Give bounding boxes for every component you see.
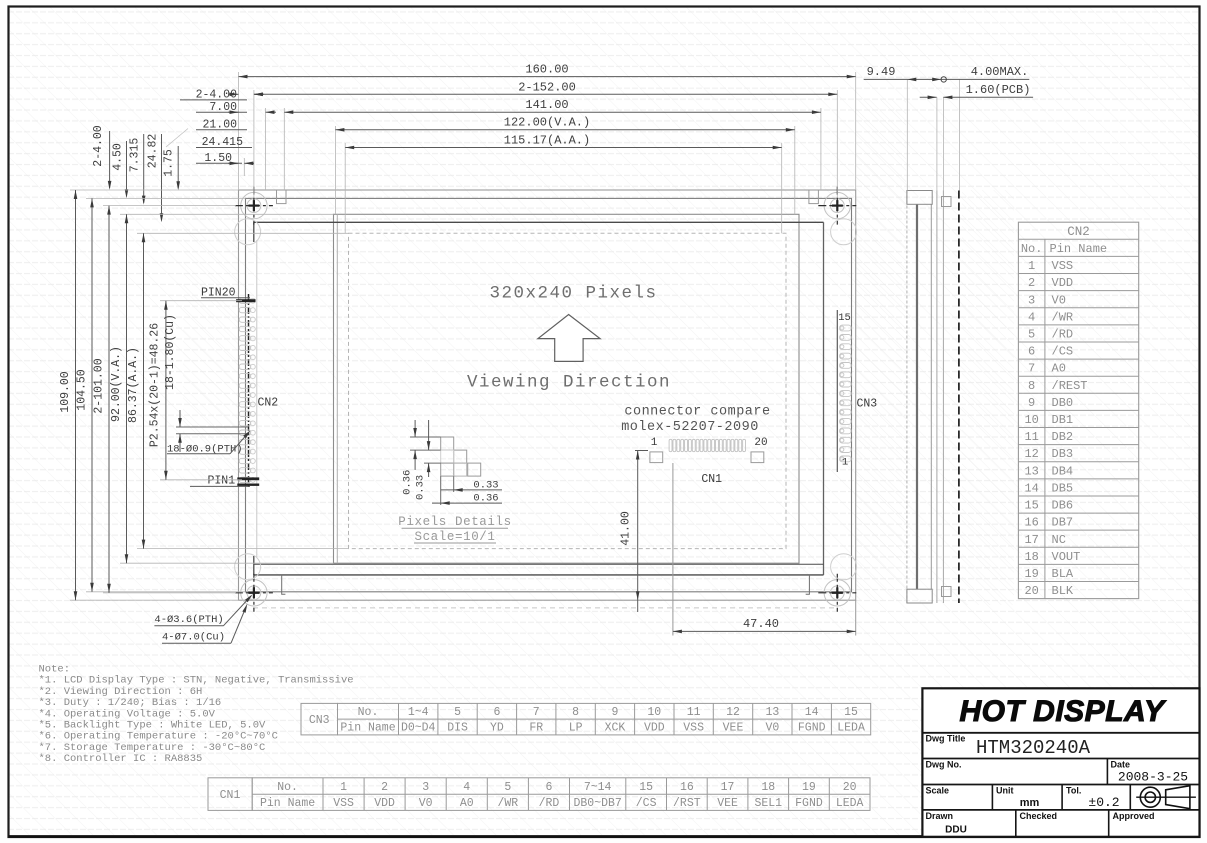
svg-text:4: 4: [1028, 310, 1035, 324]
svg-text:No.: No.: [1021, 242, 1043, 256]
svg-text:20: 20: [754, 437, 767, 449]
svg-text:FGND: FGND: [795, 797, 823, 810]
svg-text:DB2: DB2: [1052, 430, 1074, 444]
svg-text:DB7: DB7: [1052, 516, 1074, 530]
svg-text:P2.54x(20-1)=48.26: P2.54x(20-1)=48.26: [149, 323, 162, 447]
svg-text:2008-3-25: 2008-3-25: [1118, 770, 1188, 785]
svg-text:11: 11: [687, 706, 701, 719]
svg-text:PIN1: PIN1: [208, 475, 236, 488]
svg-text:1.75: 1.75: [163, 149, 176, 177]
svg-text:1: 1: [340, 781, 347, 794]
svg-text:7: 7: [1028, 362, 1035, 376]
svg-text:CN2: CN2: [258, 397, 279, 410]
svg-text:15: 15: [844, 706, 858, 719]
svg-text:6: 6: [1028, 345, 1035, 359]
svg-text:9.49: 9.49: [867, 65, 896, 79]
svg-text:/WR: /WR: [497, 797, 518, 810]
svg-text:160.00: 160.00: [525, 63, 568, 77]
svg-text:HOT DISPLAY: HOT DISPLAY: [960, 695, 1167, 728]
svg-text:10: 10: [1024, 413, 1038, 427]
svg-text:CN3: CN3: [857, 398, 878, 411]
svg-text:7.315: 7.315: [129, 138, 142, 173]
svg-text:VSS: VSS: [683, 722, 704, 735]
svg-text:HTM320240A: HTM320240A: [976, 737, 1091, 759]
svg-text:86.37(A.A.): 86.37(A.A.): [127, 347, 140, 423]
svg-text:A0: A0: [1052, 362, 1066, 376]
svg-text:16: 16: [680, 781, 694, 794]
svg-text:13: 13: [1024, 464, 1038, 478]
svg-text:DB3: DB3: [1052, 447, 1074, 461]
svg-text:1~4: 1~4: [408, 706, 429, 719]
svg-text:/CS: /CS: [1052, 345, 1074, 359]
svg-text:VOUT: VOUT: [1052, 550, 1081, 564]
svg-text:DDU: DDU: [945, 825, 967, 836]
svg-text:4-Ø3.6(PTH): 4-Ø3.6(PTH): [154, 614, 223, 626]
svg-text:92.00(V.A.): 92.00(V.A.): [110, 346, 123, 422]
svg-text:141.00: 141.00: [525, 98, 568, 112]
svg-text:V0: V0: [765, 722, 779, 735]
svg-text:24.82: 24.82: [147, 134, 160, 169]
svg-text:10: 10: [647, 706, 661, 719]
svg-text:0.33: 0.33: [473, 479, 498, 491]
svg-text:2-152.00: 2-152.00: [518, 80, 576, 94]
svg-text:8: 8: [572, 706, 579, 719]
svg-text:14: 14: [805, 706, 819, 719]
svg-text:/RST: /RST: [673, 797, 701, 810]
svg-text:104.50: 104.50: [76, 369, 89, 411]
svg-text:mm: mm: [1020, 797, 1040, 809]
svg-text:1: 1: [651, 437, 658, 449]
svg-text:DB0~DB7: DB0~DB7: [573, 797, 621, 810]
svg-text:7: 7: [533, 706, 540, 719]
svg-text:VDD: VDD: [644, 722, 665, 735]
svg-text:molex-52207-2090: molex-52207-2090: [621, 420, 759, 435]
svg-text:5: 5: [504, 781, 511, 794]
svg-text:41.00: 41.00: [620, 511, 633, 546]
svg-text:*2. Viewing Direction : 6H: *2. Viewing Direction : 6H: [39, 686, 203, 698]
svg-text:20: 20: [1024, 584, 1038, 598]
svg-text:4: 4: [463, 781, 470, 794]
svg-text:DB6: DB6: [1052, 499, 1074, 513]
svg-text:6: 6: [545, 781, 552, 794]
svg-text:Date: Date: [1111, 760, 1131, 770]
svg-text:5: 5: [454, 706, 461, 719]
svg-text:3: 3: [422, 781, 429, 794]
svg-text:Approved: Approved: [1113, 811, 1155, 821]
svg-text:4.00MAX.: 4.00MAX.: [971, 65, 1029, 79]
svg-text:DB1: DB1: [1052, 413, 1074, 427]
svg-text:Tol.: Tol.: [1066, 786, 1081, 796]
svg-text:NC: NC: [1052, 533, 1066, 547]
svg-text:VEE: VEE: [717, 797, 738, 810]
svg-text:/RD: /RD: [1052, 327, 1074, 341]
svg-text:1.60(PCB): 1.60(PCB): [966, 83, 1031, 97]
svg-text:CN3: CN3: [309, 714, 330, 727]
svg-text:*6. Operating Temperature : -2: *6. Operating Temperature : -20°C~70°C: [39, 731, 278, 743]
svg-text:0.36: 0.36: [473, 493, 498, 505]
svg-text:18-1.80(Cu): 18-1.80(Cu): [164, 314, 177, 390]
svg-text:DIS: DIS: [447, 722, 468, 735]
svg-text:109.00: 109.00: [59, 371, 72, 413]
svg-text:17: 17: [1024, 533, 1038, 547]
svg-text:4-Ø7.0(Cu): 4-Ø7.0(Cu): [162, 632, 225, 644]
svg-text:115.17(A.A.): 115.17(A.A.): [504, 133, 590, 147]
svg-text:V0: V0: [1052, 293, 1066, 307]
svg-text:2-101.00: 2-101.00: [93, 358, 106, 413]
svg-text:1: 1: [1028, 259, 1035, 273]
svg-text:47.40: 47.40: [743, 617, 779, 631]
svg-text:7~14: 7~14: [584, 781, 612, 794]
svg-text:16: 16: [1024, 516, 1038, 530]
svg-text:Scale=10/1: Scale=10/1: [414, 530, 495, 544]
svg-text:Checked: Checked: [1020, 811, 1058, 821]
svg-text:connector compare: connector compare: [624, 405, 770, 420]
svg-text:/RD: /RD: [539, 797, 560, 810]
svg-text:/WR: /WR: [1052, 310, 1074, 324]
svg-text:VEE: VEE: [723, 722, 744, 735]
svg-text:20: 20: [843, 781, 857, 794]
svg-text:Dwg Title: Dwg Title: [926, 734, 966, 744]
svg-text:D0~D4: D0~D4: [401, 722, 436, 735]
svg-text:12: 12: [726, 706, 740, 719]
svg-text:Dwg No.: Dwg No.: [926, 760, 962, 770]
svg-text:4.50: 4.50: [112, 143, 125, 171]
svg-text:3: 3: [1028, 293, 1035, 307]
svg-text:320x240 Pixels: 320x240 Pixels: [489, 284, 657, 304]
svg-text:CN2: CN2: [1067, 225, 1090, 239]
svg-text:LEDA: LEDA: [837, 722, 865, 735]
svg-text:6: 6: [493, 706, 500, 719]
svg-text:*5. Backlight Type : White LED: *5. Backlight Type : White LED, 5.0V: [39, 720, 267, 732]
svg-text:14: 14: [1024, 481, 1038, 495]
svg-text:DB0: DB0: [1052, 396, 1074, 410]
svg-text:Pin Name: Pin Name: [340, 722, 395, 735]
svg-text:Unit: Unit: [996, 786, 1014, 796]
svg-text:15: 15: [639, 781, 653, 794]
svg-text:0.36: 0.36: [402, 470, 414, 495]
svg-text:SEL1: SEL1: [754, 797, 782, 810]
svg-text:*4. Operating Voltage : 5.0V: *4. Operating Voltage : 5.0V: [39, 708, 216, 720]
svg-text:18: 18: [1024, 550, 1038, 564]
svg-text:/REST: /REST: [1052, 379, 1088, 393]
svg-text:LP: LP: [569, 722, 583, 735]
svg-text:FGND: FGND: [798, 722, 826, 735]
svg-text:*3. Duty : 1/240; Bias : 1/16: *3. Duty : 1/240; Bias : 1/16: [39, 697, 222, 709]
svg-text:9: 9: [1028, 396, 1035, 410]
svg-text:Note:: Note:: [39, 664, 71, 676]
svg-text:VSS: VSS: [1052, 259, 1074, 273]
svg-text:13: 13: [765, 706, 779, 719]
svg-text:/CS: /CS: [636, 797, 657, 810]
svg-text:CN1: CN1: [701, 473, 722, 486]
svg-text:5: 5: [1028, 327, 1035, 341]
svg-text:17: 17: [721, 781, 735, 794]
svg-text:19: 19: [802, 781, 816, 794]
svg-text:9: 9: [611, 706, 618, 719]
svg-text:YD: YD: [490, 722, 504, 735]
svg-text:*1. LCD Display Type : STN, Ne: *1. LCD Display Type : STN, Negative, Tr…: [39, 675, 354, 687]
svg-text:LEDA: LEDA: [836, 797, 864, 810]
svg-text:±0.2: ±0.2: [1088, 795, 1119, 810]
svg-text:Viewing Direction: Viewing Direction: [467, 373, 671, 393]
svg-text:V0: V0: [419, 797, 433, 810]
svg-text:2-4.00: 2-4.00: [92, 125, 105, 167]
svg-text:15: 15: [1024, 499, 1038, 513]
svg-text:122.00(V.A.): 122.00(V.A.): [504, 116, 590, 130]
svg-text:1: 1: [842, 457, 848, 469]
svg-text:19: 19: [1024, 567, 1038, 581]
svg-text:DB4: DB4: [1052, 464, 1074, 478]
svg-text:A0: A0: [460, 797, 474, 810]
svg-text:XCK: XCK: [605, 722, 626, 735]
svg-text:VDD: VDD: [374, 797, 395, 810]
svg-text:No.: No.: [277, 781, 298, 794]
svg-text:11: 11: [1024, 430, 1038, 444]
svg-text:0.33: 0.33: [414, 475, 426, 500]
svg-text:Scale: Scale: [926, 786, 950, 796]
svg-text:Pixels Details: Pixels Details: [398, 515, 511, 529]
svg-text:CN1: CN1: [220, 789, 241, 802]
svg-text:15: 15: [838, 312, 851, 324]
svg-text:BLK: BLK: [1052, 584, 1074, 598]
svg-text:*7. Storage Temperature : -30°: *7. Storage Temperature : -30°C~80°C: [39, 742, 266, 754]
svg-text:*8. Controller IC : RA8835: *8. Controller IC : RA8835: [39, 753, 203, 765]
svg-text:2: 2: [381, 781, 388, 794]
svg-text:BLA: BLA: [1052, 567, 1074, 581]
svg-text:VDD: VDD: [1052, 276, 1074, 290]
svg-text:VSS: VSS: [333, 797, 354, 810]
svg-text:FR: FR: [529, 722, 543, 735]
svg-text:Pin Name: Pin Name: [1050, 242, 1108, 256]
svg-text:No.: No.: [358, 706, 379, 719]
svg-text:8: 8: [1028, 379, 1035, 393]
svg-text:12: 12: [1024, 447, 1038, 461]
svg-text:2: 2: [1028, 276, 1035, 290]
svg-text:Drawn: Drawn: [926, 811, 954, 821]
svg-text:18: 18: [761, 781, 775, 794]
svg-text:Pin Name: Pin Name: [260, 797, 315, 810]
svg-text:DB5: DB5: [1052, 481, 1074, 495]
